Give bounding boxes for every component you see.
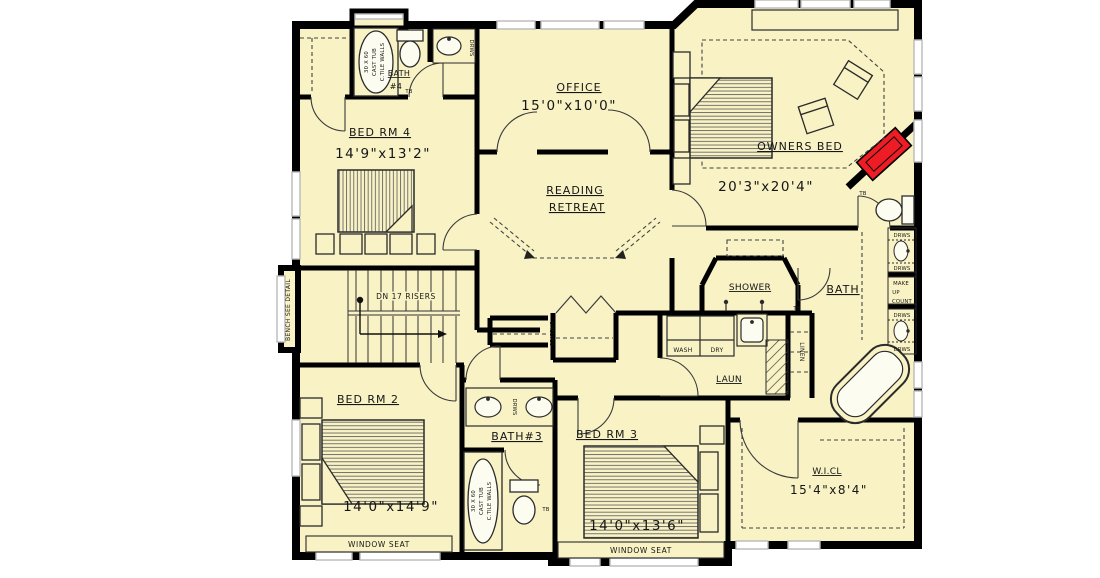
reading-retreat-label-1: READING (546, 184, 604, 197)
laundry-label: LAUN (716, 375, 742, 385)
shower-label: SHOWER (729, 283, 771, 293)
drws-label-m4: DRWS (894, 347, 911, 353)
wicl-label: W.I.CL (812, 467, 841, 477)
bath3-label: BATH#3 (491, 430, 542, 443)
window-seat-label-bedrm2: WINDOW SEAT (348, 540, 410, 549)
bath4-label-2: #4 (390, 82, 402, 91)
master-bath-label: BATH (826, 283, 859, 296)
tb-label-bath4: TB (404, 89, 412, 95)
drws-label-m1: DRWS (894, 233, 911, 239)
bedrm2-dims: 14'0"x14'9" (343, 499, 439, 515)
tb-label-shower: TB (792, 306, 800, 312)
drws-label-m3: DRWS (894, 313, 911, 319)
bedrm4-label: BED RM 4 (349, 126, 411, 139)
bath4-label-1: BATH (388, 69, 410, 78)
cast-tub-label-b4-3: C.TILE WALLS (380, 42, 386, 81)
bedrm3-label: BED RM 3 (576, 428, 638, 441)
drws-label-bath3: DRWS (511, 399, 517, 416)
tb-label-bath3: TB (541, 507, 549, 513)
cast-tub-label-b4-1: 30 X 60 (364, 51, 370, 73)
bedrm3-dims: 14'0"x13'6" (589, 518, 685, 534)
laundry-sink-icon (737, 314, 767, 346)
cast-tub-label-b3-1: 30 X 60 (471, 490, 477, 512)
wicl-dims: 15'4"x8'4" (790, 483, 868, 497)
dryer-label: DRY (711, 347, 724, 354)
cast-tub-label-b3-2: CAST TUB (479, 487, 485, 515)
linen-label: LINEN (798, 342, 805, 361)
owners-bed-dims: 20'3"x20'4" (718, 179, 814, 195)
stairs-label: DN 17 RISERS (376, 292, 436, 301)
wc-toilet-icon (876, 196, 914, 224)
makeup-label-1: MAKE (893, 281, 909, 287)
makeup-label-3: COUNT (892, 299, 913, 305)
bedrm2-label: BED RM 2 (337, 393, 399, 406)
floor-plan-page: BED RM 4 14'9"x13'2" OFFICE 15'0"x10'0" … (0, 0, 1100, 578)
cast-tub-label-b4-2: CAST TUB (372, 48, 378, 76)
owners-bed-label: OWNERS BED (757, 140, 843, 153)
floor-plan-drawing: BED RM 4 14'9"x13'2" OFFICE 15'0"x10'0" … (0, 0, 1100, 578)
cast-tub-label-b3-3: C.TILE WALLS (487, 481, 493, 520)
drws-label-bath4: DRWS (468, 40, 474, 57)
tb-label-wc: TB (858, 191, 866, 197)
shelves-label: SHELVES (548, 322, 554, 347)
reading-retreat-label-2: RETREAT (549, 201, 605, 214)
drws-label-m2: DRWS (894, 266, 911, 272)
bench-label: BENCH SEE DETAIL (285, 279, 292, 341)
bath3-vanity (466, 388, 553, 426)
office-dims: 15'0"x10'0" (521, 98, 617, 114)
makeup-label-2: UP (892, 290, 900, 296)
laundry-chute (766, 340, 788, 394)
washer-label: WASH (673, 347, 692, 354)
office-label: OFFICE (556, 81, 601, 94)
window-seat-label-bedrm3: WINDOW SEAT (610, 546, 672, 555)
bedrm4-dims: 14'9"x13'2" (335, 146, 431, 162)
